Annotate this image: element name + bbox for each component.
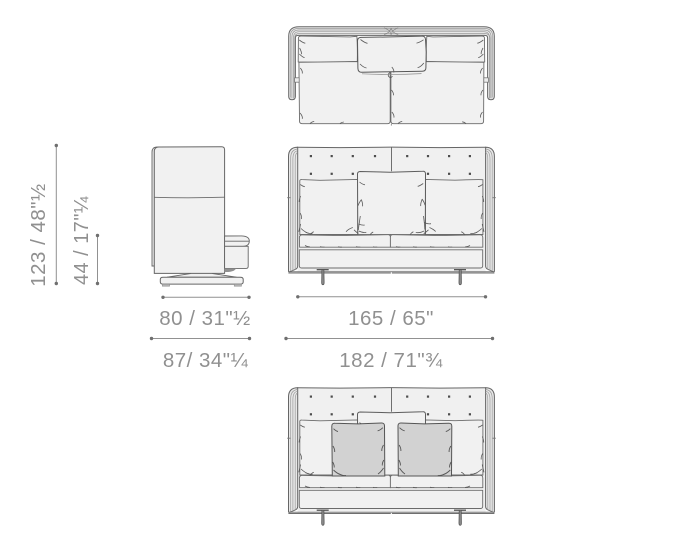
svg-text:80 / 31"½: 80 / 31"½	[159, 307, 251, 330]
svg-text:87/ 34"¼: 87/ 34"¼	[163, 349, 249, 372]
svg-text:44 / 17"¼: 44 / 17"¼	[71, 196, 93, 285]
svg-text:123 / 48"½: 123 / 48"½	[27, 183, 50, 286]
svg-text:165 / 65": 165 / 65"	[348, 307, 434, 330]
svg-text:182 / 71"¾: 182 / 71"¾	[339, 349, 443, 372]
